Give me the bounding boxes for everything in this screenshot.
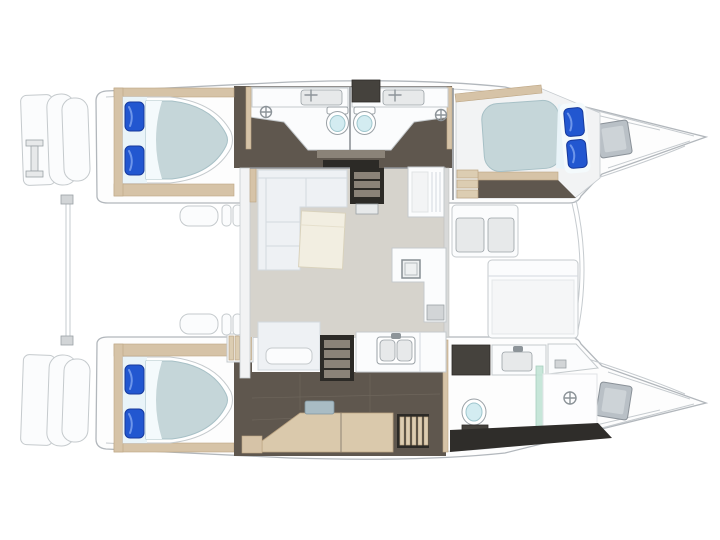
faucet-icon <box>513 346 523 352</box>
cooktop-icon <box>402 260 420 278</box>
shower-head-icon <box>564 392 576 404</box>
upper-bow-hatch-icon <box>596 120 633 159</box>
floor-trim <box>478 172 558 180</box>
companionway-steps-lower <box>320 335 354 381</box>
upper-forward-cabin <box>453 85 600 200</box>
shower-head-icon <box>261 107 272 118</box>
bed-trim <box>114 443 234 452</box>
slatted-floor-panel <box>397 414 429 448</box>
tall-cabinet <box>408 167 444 217</box>
floor-plan: Catamaran interior floor plan, top-down … <box>0 0 720 540</box>
lower-bow-hatch-icon <box>596 382 633 421</box>
galley-counter <box>356 332 446 372</box>
sink-basin-icon <box>383 90 424 105</box>
catamaran-plan-svg: Catamaran interior floor plan, top-down … <box>0 0 720 540</box>
bathroom-step <box>323 160 379 168</box>
bed-trim <box>114 88 123 196</box>
pillow <box>566 139 587 169</box>
island-inset <box>427 305 444 320</box>
shower-head-icon <box>436 110 447 121</box>
aft-crossbeam <box>61 195 73 345</box>
bed-trim <box>114 344 234 356</box>
shower-glass-screen <box>536 366 543 428</box>
cabin-steps <box>457 170 478 198</box>
coffee-table <box>299 211 346 269</box>
foredeck-lounge-aft <box>452 205 518 257</box>
desk-shelf <box>242 436 262 453</box>
lounge-cushion <box>488 218 514 252</box>
pillow <box>563 107 584 137</box>
toilet-icon <box>327 107 349 135</box>
stern-assembly <box>20 94 90 447</box>
desk-tablet <box>305 401 334 414</box>
sink-basin-icon <box>301 90 342 105</box>
faucet-icon <box>391 333 401 339</box>
crossbeam-cleat-upper <box>61 195 73 204</box>
lounge-cushion <box>456 218 484 252</box>
transom-step-upper-2 <box>62 98 91 182</box>
foredeck-lounge-forward <box>488 260 578 338</box>
sink-basin-icon <box>502 352 532 371</box>
foredeck <box>452 200 584 340</box>
pillow <box>125 409 144 438</box>
wall-trim <box>250 168 256 202</box>
bed-trim <box>114 184 234 196</box>
saloon-left-wall <box>240 168 250 378</box>
bed-trim <box>114 88 234 97</box>
bathroom-step <box>317 150 385 158</box>
bed-duvet <box>481 99 563 172</box>
vanity-dark-cabinet <box>452 345 490 375</box>
counter-item <box>555 360 566 368</box>
pillow <box>125 102 144 131</box>
aft-bench <box>258 322 320 370</box>
pillow <box>125 146 144 175</box>
crossbeam-cleat-lower <box>61 336 73 345</box>
saloon <box>240 167 449 381</box>
toilet-icon <box>354 107 376 135</box>
transom-step-lower-2 <box>62 359 91 443</box>
pillow <box>125 365 144 394</box>
bed-trim <box>114 344 123 452</box>
bathroom-trim <box>246 87 251 149</box>
dark-cabinet <box>352 80 380 102</box>
